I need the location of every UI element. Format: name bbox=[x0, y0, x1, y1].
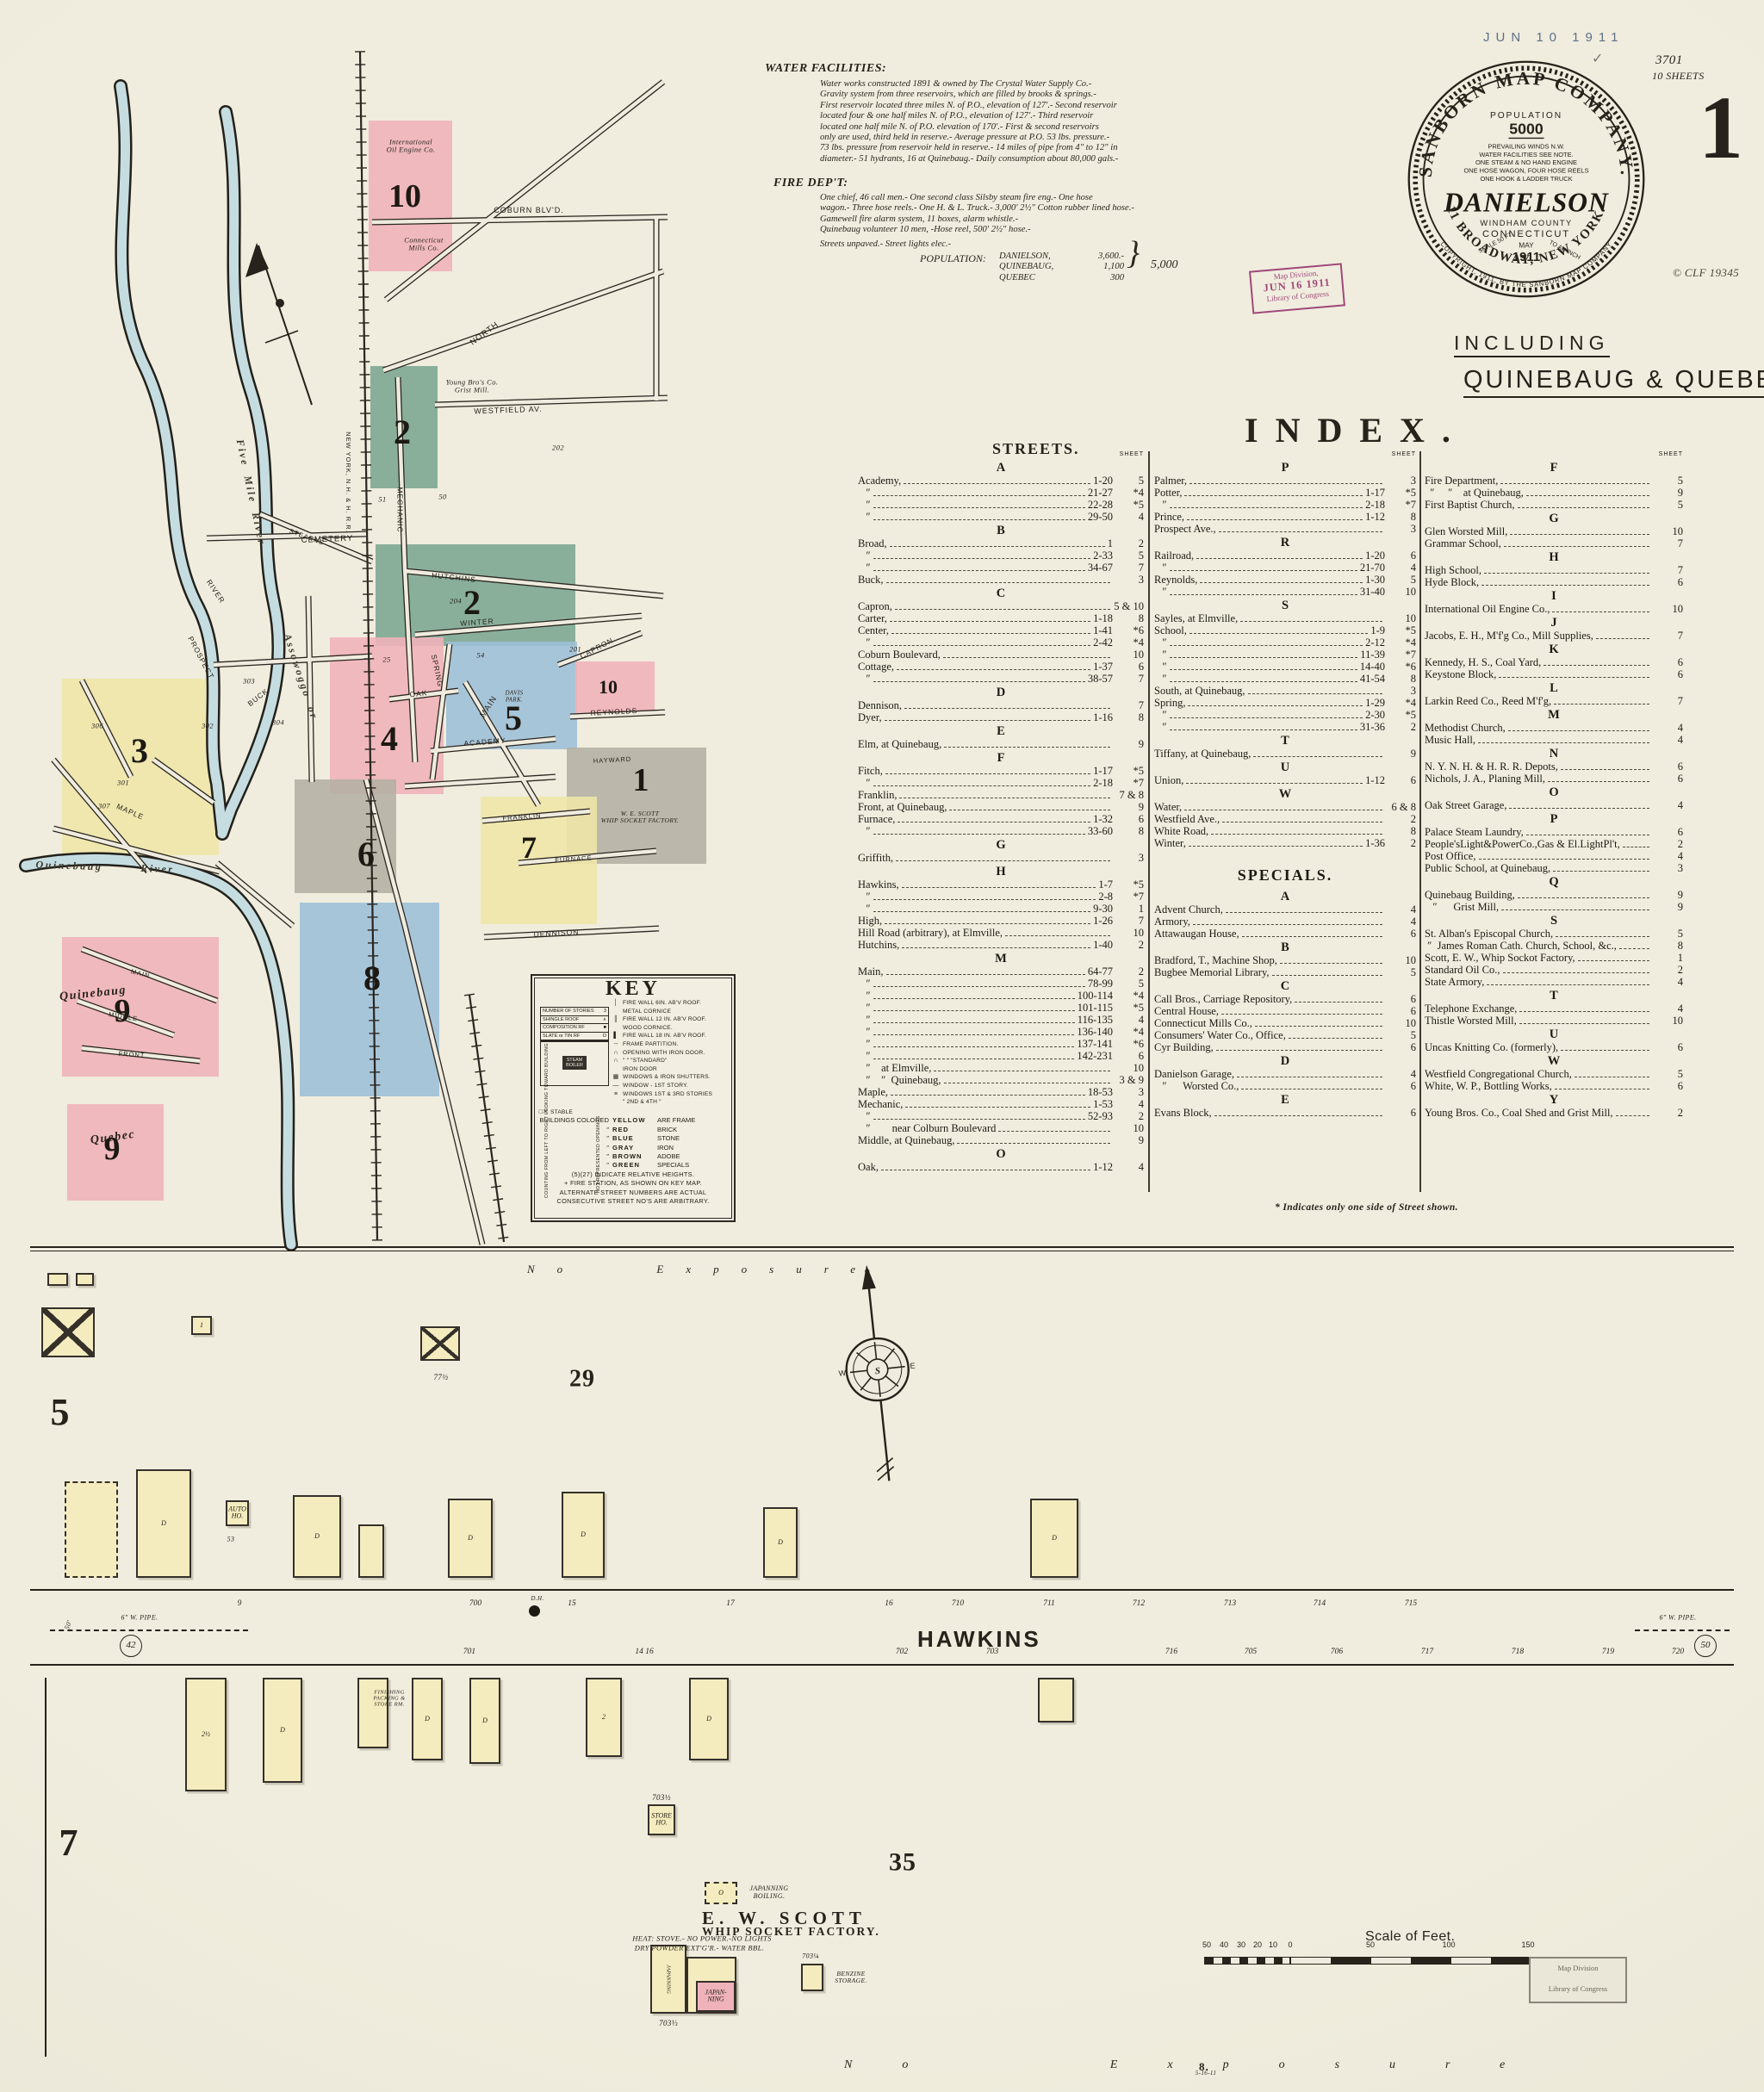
water-pipe-dashes bbox=[1635, 1630, 1730, 1631]
building: D bbox=[562, 1492, 605, 1578]
district-number: 10 bbox=[599, 678, 618, 697]
key-symbol-row: METAL CORNICE bbox=[609, 1008, 730, 1016]
small-annotation: 5-16-11 bbox=[1196, 2070, 1216, 2077]
street-number: 712 bbox=[1133, 1599, 1145, 1608]
district-number: 10 bbox=[388, 180, 421, 213]
map-lot-number: 204 bbox=[450, 597, 462, 605]
map-lot-number: 201 bbox=[569, 645, 581, 653]
hawkins-street-label: HAWKINS bbox=[917, 1627, 1041, 1652]
hawkins-street-south-line bbox=[30, 1664, 1734, 1666]
seal-population-label: POPULATION bbox=[1490, 111, 1562, 121]
water-pipe-dashes bbox=[50, 1630, 248, 1631]
small-annotation: JAPANNING BOILING. bbox=[749, 1885, 788, 1901]
railroads bbox=[355, 52, 508, 1242]
building: D bbox=[293, 1495, 341, 1578]
building-label: JAPAN- NING bbox=[705, 1990, 726, 2004]
svg-text:N: N bbox=[864, 1268, 871, 1277]
key-symbol-icon: ∩ bbox=[609, 1049, 623, 1058]
seal-county: WINDHAM COUNTY bbox=[1480, 219, 1572, 227]
key-symbol-icon: -- bbox=[609, 1040, 623, 1049]
key-symbol-icon: ║ bbox=[609, 1015, 623, 1024]
hawkins-street-north-line bbox=[30, 1589, 1734, 1591]
scale-tick-label: 150 bbox=[1521, 1940, 1534, 1949]
hydrant-dot bbox=[529, 1605, 540, 1617]
building-label: 1 bbox=[200, 1322, 203, 1329]
building: D bbox=[469, 1678, 500, 1764]
building bbox=[1038, 1678, 1074, 1723]
scale-tick-label: 10 bbox=[1269, 1940, 1277, 1949]
street-number: 719 bbox=[1602, 1648, 1614, 1656]
key-symbol-icon: — bbox=[609, 1082, 623, 1090]
street-number: 703 bbox=[986, 1648, 998, 1656]
scale-tick-label: 40 bbox=[1220, 1940, 1228, 1949]
map-label: Connecticut Mills Co. bbox=[404, 237, 443, 253]
small-annotation: 6" W. PIPE. bbox=[1659, 1615, 1696, 1623]
seal-population-value: 5000 bbox=[1509, 121, 1543, 138]
seal-month: MAY bbox=[1519, 240, 1534, 249]
street-number: 718 bbox=[1512, 1648, 1524, 1656]
district-number: 5 bbox=[505, 701, 522, 736]
map-lot-number: 54 bbox=[476, 651, 484, 659]
street-number: 14 16 bbox=[635, 1648, 653, 1656]
key-symbol-row: IRON DOOR bbox=[609, 1065, 730, 1074]
section-rule bbox=[30, 1251, 1734, 1251]
street-number: 9 bbox=[238, 1599, 242, 1608]
building-label: D bbox=[280, 1727, 285, 1734]
street-number: 714 bbox=[1314, 1599, 1326, 1608]
map-lot-number: 202 bbox=[552, 444, 564, 451]
key-symbol-icon bbox=[609, 1024, 623, 1033]
building-label: D bbox=[314, 1533, 320, 1540]
key-symbol-row: ▦WINDOWS & IRON SHUTTERS. bbox=[609, 1073, 730, 1082]
sanborn-map-sheet: Water Facilities: Water works constructe… bbox=[0, 0, 1764, 2092]
small-annotation: HEAT: STOVE.- NO POWER.-NO LIGHTS bbox=[632, 1934, 771, 1942]
map-lot-number: 301 bbox=[117, 779, 129, 786]
key-stable-row: □✕STABLE bbox=[537, 1108, 730, 1117]
key-note: CONSECUTIVE STREET NO'S ARE ARBITRARY. bbox=[537, 1197, 730, 1207]
building-label: O bbox=[718, 1890, 724, 1896]
building bbox=[801, 1964, 823, 1991]
map-label: NEW YORK, N.H. & H. R.R. bbox=[345, 431, 351, 533]
key-note: (5)(27) INDICATE RELATIVE HEIGHTS. bbox=[537, 1170, 730, 1180]
building-label: 2½ bbox=[202, 1731, 210, 1738]
building-label: 2 bbox=[602, 1714, 606, 1721]
building: AUTO HO. bbox=[226, 1500, 249, 1526]
district-number: 4 bbox=[381, 722, 398, 756]
building: D bbox=[689, 1678, 729, 1760]
street-number: 716 bbox=[1165, 1648, 1177, 1656]
building: D bbox=[412, 1678, 443, 1760]
map-lot-number: 303 bbox=[243, 677, 255, 685]
street-number: 706 bbox=[1331, 1648, 1343, 1656]
small-annotation: FINISHING PACKING & STORE RM. bbox=[373, 1689, 405, 1707]
key-symbol-icon bbox=[609, 1065, 623, 1074]
key-symbol-row: ∩OPENING WITH IRON DOOR. bbox=[609, 1049, 730, 1058]
district-number: 8 bbox=[363, 961, 381, 996]
building: D bbox=[448, 1499, 493, 1578]
street-number: 717 bbox=[1421, 1648, 1433, 1656]
key-symbol-row: WOOD CORNICE. bbox=[609, 1024, 730, 1033]
building-label: D bbox=[482, 1717, 488, 1724]
district-number: 3 bbox=[131, 734, 148, 768]
key-symbol-row: │FIRE WALL 6IN. AB'V ROOF. bbox=[609, 999, 730, 1008]
building-label: AUTO HO. bbox=[228, 1506, 246, 1521]
street-number: 705 bbox=[1245, 1648, 1257, 1656]
svg-text:S: S bbox=[874, 1366, 880, 1377]
seal-note: ONE STEAM & NO HAND ENGINE bbox=[1475, 158, 1577, 166]
map-label: International Oil Engine Co. bbox=[387, 139, 436, 155]
key-color-row: ″GRAYIRON bbox=[537, 1144, 730, 1152]
building-label: D bbox=[425, 1716, 430, 1723]
small-annotation: 703⅓ bbox=[659, 2020, 678, 2028]
key-symbol-icon bbox=[609, 1008, 623, 1016]
key-symbol-row: ∩″ ″ "STANDARD" bbox=[609, 1057, 730, 1065]
stamp-line: Library of Congress bbox=[1531, 1984, 1625, 1993]
district-number: 2 bbox=[463, 586, 481, 620]
scale-tick-label: 0 bbox=[1288, 1940, 1292, 1949]
key-note: + FIRE STATION, AS SHOWN ON KEY MAP. bbox=[537, 1179, 730, 1189]
sanborn-seal: SANBORN MAP COMPANY. POPULATION 5000 PRE… bbox=[1406, 59, 1647, 300]
map-division-box-stamp: Map Division Library of Congress bbox=[1529, 1957, 1627, 2003]
block-number: 29 bbox=[569, 1367, 595, 1394]
seal-state: CONNECTICUT bbox=[1482, 229, 1570, 239]
district-number: 6 bbox=[357, 837, 375, 872]
small-annotation: 703¼ bbox=[802, 1953, 819, 1961]
key-symbol-icon: ∩ bbox=[609, 1057, 623, 1065]
map-label: COBURN BLV'D. bbox=[494, 207, 564, 215]
street-number: 16 bbox=[885, 1599, 893, 1608]
map-label: DAVIS PARK. bbox=[505, 690, 523, 703]
stamp-line: Map Division bbox=[1531, 1964, 1625, 1972]
building bbox=[47, 1273, 68, 1286]
street-number: 17 bbox=[726, 1599, 735, 1608]
building: D bbox=[136, 1469, 191, 1578]
small-annotation: D.H. bbox=[531, 1596, 543, 1603]
scale-tick-label: 50 bbox=[1202, 1940, 1211, 1949]
key-color-row: ″BROWNADOBE bbox=[537, 1152, 730, 1161]
small-annotation: 53 bbox=[227, 1536, 235, 1544]
key-symbol-row: ▌FIRE WALL 18 IN. AB'V ROOF. bbox=[609, 1032, 730, 1040]
key-symbol-icon: ≡ bbox=[609, 1090, 623, 1099]
district-number: 1 bbox=[633, 764, 649, 797]
circled-number: 50 bbox=[1694, 1635, 1717, 1657]
street-number: 720 bbox=[1672, 1648, 1684, 1656]
map-label: W. E. SCOTT WHIP SOCKET FACTORY. bbox=[601, 810, 680, 825]
key-color-row: ″REDBRICK bbox=[537, 1126, 730, 1134]
seal-note: ONE HOOK & LADDER TRUCK bbox=[1480, 175, 1572, 183]
map-lot-number: 51 bbox=[378, 495, 386, 503]
key-color-row: ″BLUESTONE bbox=[537, 1134, 730, 1143]
street-number: 713 bbox=[1224, 1599, 1236, 1608]
key-symbol-row: ≡WINDOWS 1ST & 3RD STORIES bbox=[609, 1090, 730, 1099]
small-annotation: 6" W. PIPE. bbox=[121, 1615, 158, 1623]
building: JAPAN- NING bbox=[696, 1981, 736, 2012]
crossed-building bbox=[420, 1326, 460, 1361]
scale-bar-fine bbox=[1204, 1957, 1290, 1965]
map-lot-number: 25 bbox=[382, 655, 390, 663]
small-annotation: 703½ bbox=[652, 1794, 671, 1803]
building-label: D bbox=[161, 1520, 166, 1527]
map-label: MECHANIC bbox=[395, 487, 403, 532]
map-lot-number: 302 bbox=[202, 722, 214, 729]
svg-text:W: W bbox=[838, 1369, 847, 1378]
street-number: 700 bbox=[469, 1599, 481, 1608]
seal-note: ONE HOSE WAGON, FOUR HOSE REELS bbox=[1463, 167, 1588, 175]
map-lot-number: 306 bbox=[91, 722, 103, 729]
map-lot-number: 50 bbox=[438, 493, 446, 500]
scale-tick-label: 20 bbox=[1253, 1940, 1262, 1949]
left-border bbox=[45, 1678, 47, 2057]
map-lot-number: 307 bbox=[98, 802, 110, 810]
small-annotation: DRY POWDER EXT'G'R.- WATER BBL. bbox=[635, 1944, 764, 1952]
building: D bbox=[1030, 1499, 1078, 1578]
block-number: 7 bbox=[59, 1822, 79, 1864]
building: 2½ bbox=[185, 1678, 227, 1791]
building: STORE HO. bbox=[648, 1804, 675, 1835]
building: 2 bbox=[586, 1678, 622, 1757]
building-label: D bbox=[581, 1531, 586, 1538]
map-label: Young Bro's Co. Grist Mill. bbox=[446, 379, 499, 395]
streets bbox=[53, 82, 668, 1245]
seal-note: PREVAILING WINDS N.W. bbox=[1488, 143, 1564, 151]
compass-rose-icon: S N W E bbox=[823, 1259, 935, 1500]
small-annotation: 77½ bbox=[434, 1374, 449, 1382]
street-number: 702 bbox=[896, 1648, 908, 1656]
scale-tick-label: 100 bbox=[1442, 1940, 1455, 1949]
district-number: 7 bbox=[521, 832, 537, 863]
key-symbol-row: ″ 2ND & 4TH ″ bbox=[609, 1098, 730, 1107]
building bbox=[65, 1481, 118, 1578]
key-symbol-icon: ▌ bbox=[609, 1032, 623, 1040]
north-arrow-icon bbox=[245, 243, 312, 405]
svg-text:E: E bbox=[910, 1361, 916, 1370]
building-label: D bbox=[706, 1716, 711, 1723]
building bbox=[358, 1524, 384, 1578]
key-color-row: BUILDINGS COLOREDYELLOWARE FRAME bbox=[537, 1116, 730, 1125]
crossed-building bbox=[41, 1307, 95, 1357]
key-color-row: ″GREENSPECIALS bbox=[537, 1161, 730, 1170]
key-symbol-row: ║FIRE WALL 12 IN. AB'V ROOF. bbox=[609, 1015, 730, 1024]
building: JAPANNING bbox=[650, 1945, 686, 2014]
key-symbol-icon: │ bbox=[609, 999, 623, 1008]
scale-tick-label: 50 bbox=[1366, 1940, 1375, 1949]
key-symbol-icon: ▦ bbox=[609, 1073, 623, 1082]
small-annotation: BENZINE STORAGE. bbox=[835, 1971, 866, 1985]
street-number: 710 bbox=[952, 1599, 964, 1608]
street-number: 15 bbox=[568, 1599, 576, 1608]
seal-city: DANIELSON bbox=[1443, 187, 1609, 217]
building-label: JAPANNING bbox=[666, 1965, 672, 1994]
block-number: 35 bbox=[889, 1848, 916, 1877]
seal-note: WATER FACILITIES SEE NOTE. bbox=[1479, 151, 1573, 158]
building-label: D bbox=[468, 1535, 473, 1542]
key-symbol-row: —WINDOW - 1ST STORY. bbox=[609, 1082, 730, 1090]
building: D bbox=[263, 1678, 302, 1783]
building: O bbox=[705, 1882, 737, 1904]
key-symbol-row: --FRAME PARTITION. bbox=[609, 1040, 730, 1049]
key-note: ALTERNATE STREET NUMBERS ARE ACTUAL bbox=[537, 1189, 730, 1198]
building: 1 bbox=[191, 1316, 212, 1335]
building-label: STORE HO. bbox=[651, 1813, 672, 1828]
street-number: 701 bbox=[463, 1648, 475, 1656]
building bbox=[76, 1273, 94, 1286]
block-number: 5 bbox=[51, 1392, 71, 1433]
circled-number: 42 bbox=[120, 1635, 142, 1657]
building-label: D bbox=[1052, 1535, 1057, 1542]
building: D bbox=[763, 1507, 798, 1578]
scale-tick-label: 30 bbox=[1237, 1940, 1245, 1949]
street-number: 711 bbox=[1043, 1599, 1055, 1608]
map-lot-number: 304 bbox=[272, 718, 284, 726]
building-label: D bbox=[778, 1539, 783, 1546]
street-number: 715 bbox=[1405, 1599, 1417, 1608]
district-number: 2 bbox=[394, 415, 411, 450]
key-symbol-icon bbox=[609, 1098, 623, 1107]
